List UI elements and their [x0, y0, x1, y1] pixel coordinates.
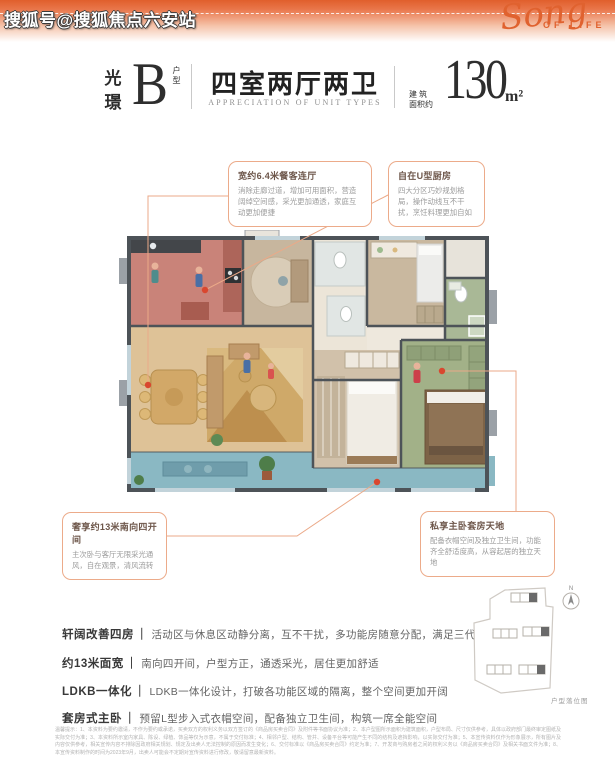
indoor-plant — [211, 434, 223, 446]
feature-row-suite-master: 套房式主卧｜预留L型步入式衣帽空间，配备独立卫生间，构筑一席全能空间 — [62, 709, 532, 725]
kitchen-counter-sink — [131, 240, 201, 253]
feature-desc: LDKB一体化设计，打破各功能区域的隔离，整个空间更加开阔 — [149, 686, 448, 698]
feature-desc: 南向四开间，户型方正，通透采光，居住更加舒适 — [141, 658, 379, 670]
master-bed — [425, 390, 487, 464]
feature-separator: ｜ — [124, 713, 136, 725]
headline-english: APPRECIATION OF UNIT TYPES — [205, 98, 385, 107]
dining-table-set — [140, 370, 209, 424]
compass-north-icon: N — [563, 586, 579, 609]
balcony-south — [313, 468, 487, 490]
feature-label: 套房式主卧 — [62, 713, 122, 725]
feature-desc: 预留L型步入式衣帽空间，配备独立卫生间，构筑一席全能空间 — [140, 713, 438, 725]
master-dresser — [407, 346, 461, 360]
area-label-bottom: 面积约 — [409, 100, 435, 110]
sofa — [207, 356, 223, 428]
bedroom3-wardrobe — [345, 352, 399, 368]
coffee-table — [250, 385, 276, 411]
bedroom2-wardrobe — [417, 306, 443, 323]
site-location-map: N 户型落位图 — [473, 583, 613, 723]
feature-separator: ｜ — [136, 629, 148, 641]
building-3 — [523, 627, 549, 636]
feature-desc: 活动区与休息区动静分离，互不干扰，多功能房随意分配，满足三代同堂需求 — [152, 629, 519, 641]
building-4 — [487, 665, 511, 674]
figure-woman-master — [414, 363, 421, 384]
area-label: 建筑 面积约 — [409, 90, 435, 110]
series-name-char-2: 璟 — [103, 88, 123, 113]
bedroom3-bed — [347, 380, 397, 464]
floor-plan — [95, 230, 515, 500]
toilet-1 — [334, 252, 346, 268]
kitchen-island — [181, 302, 209, 320]
feature-row-four-rooms: 轩阔改善四房｜活动区与休息区动静分离，互不干扰，多功能房随意分配，满足三代同堂需… — [62, 625, 532, 641]
figure-child-living — [268, 363, 274, 379]
room-living-dining — [129, 326, 313, 452]
building-1 — [511, 593, 537, 602]
master-closet — [469, 346, 487, 394]
callout-body: 四大分区巧妙规划格局，操作动线互不干扰，烹饪料理更加自如 — [398, 185, 475, 218]
callout-kitchen: 自在U型厨房 四大分区巧妙规划格局，操作动线互不干扰，烹饪料理更加自如 — [388, 161, 485, 227]
figure-cook-1 — [152, 263, 159, 284]
callout-body: 消除走廊过道，增加可用面积，营造阔绰空间感，采光更加通透，家庭互动更加便捷 — [238, 185, 362, 218]
title-divider-right — [394, 66, 395, 108]
feature-separator: ｜ — [134, 686, 146, 698]
room-bedroom-south — [313, 350, 401, 468]
feature-row-13m-frontage: 约13米面宽｜南向四开间，户型方正，通透采光，居住更加舒适 — [62, 654, 532, 670]
feature-label: LDKB一体化 — [62, 686, 132, 698]
area-value: 130 — [444, 52, 506, 108]
feature-label: 轩阔改善四房 — [62, 629, 134, 641]
callout-title: 私享主卧套房天地 — [430, 519, 545, 532]
room-kitchen — [131, 240, 243, 326]
bath-sink — [449, 282, 461, 290]
area-label-top: 建筑 — [409, 90, 435, 100]
area-unit: m² — [505, 88, 523, 106]
building-5 — [519, 665, 545, 674]
room-master-bath — [445, 278, 487, 340]
watermark-text: 搜狐号@搜狐焦点六安站 — [4, 6, 196, 31]
title-divider-left — [191, 64, 192, 109]
study-chair — [278, 276, 288, 286]
headline: 四室两厅两卫 — [205, 64, 385, 101]
study-desk — [291, 260, 308, 302]
toilet-2 — [341, 307, 352, 322]
callout-title: 奢享约13米南向四开间 — [72, 520, 157, 546]
callout-dining-living: 宽约6.4米餐客连厅 消除走廊过道，增加可用面积，营造阔绰空间感，采光更加通透，… — [228, 161, 372, 227]
series-name-char-1: 光 — [103, 64, 123, 89]
callout-body: 配备衣帽空间及独立卫生间，功能齐全舒适度高，从容起居的独立天地 — [430, 535, 545, 568]
callout-master-suite: 私享主卧套房天地 配备衣帽空间及独立卫生间，功能齐全舒适度高，从容起居的独立天地 — [420, 511, 555, 577]
room-master-bedroom — [401, 340, 487, 468]
feature-separator: ｜ — [126, 658, 138, 670]
callout-title: 自在U型厨房 — [398, 169, 475, 182]
balcony-plant-small — [134, 475, 144, 485]
compass-letter: N — [569, 586, 573, 592]
plan-type-suffix: 户型 — [171, 66, 182, 86]
poster-page: { "header": { "watermark": "搜狐号@搜狐焦点六安站"… — [0, 0, 615, 767]
feature-row-ldkb: LDKB一体化｜LDKB一体化设计，打破各功能区域的隔离，整个空间更加开阔 — [62, 682, 532, 698]
plan-type-letter: B — [132, 56, 168, 112]
callout-body: 主次卧与客厅无限采光通风，自在观景，清风流转 — [72, 549, 157, 571]
building-2 — [493, 629, 517, 638]
kitchen-stove — [225, 268, 241, 283]
equipment-platform — [445, 238, 487, 278]
figure-cook-2 — [196, 267, 203, 288]
disclaimer-text: 温馨提示：1、本资料为要约邀请，不作为要约或承诺，买卖双方的权利义务以双方签订的… — [55, 727, 561, 757]
callout-south-bays: 奢享约13米南向四开间 主次卧与客厅无限采光通风，自在观景，清风流转 — [62, 512, 167, 580]
siteplan-caption: 户型落位图 — [551, 696, 589, 705]
feature-label: 约13米面宽 — [62, 658, 124, 670]
site-boundary — [474, 588, 553, 693]
room-bedroom-secondary — [367, 240, 445, 326]
room-study — [243, 240, 313, 326]
bedroom3-curtain — [317, 376, 345, 458]
brand-logo-caption: OF LIFE — [543, 20, 606, 30]
figure-parent-living — [244, 353, 251, 374]
callout-title: 宽约6.4米餐客连厅 — [238, 169, 362, 182]
